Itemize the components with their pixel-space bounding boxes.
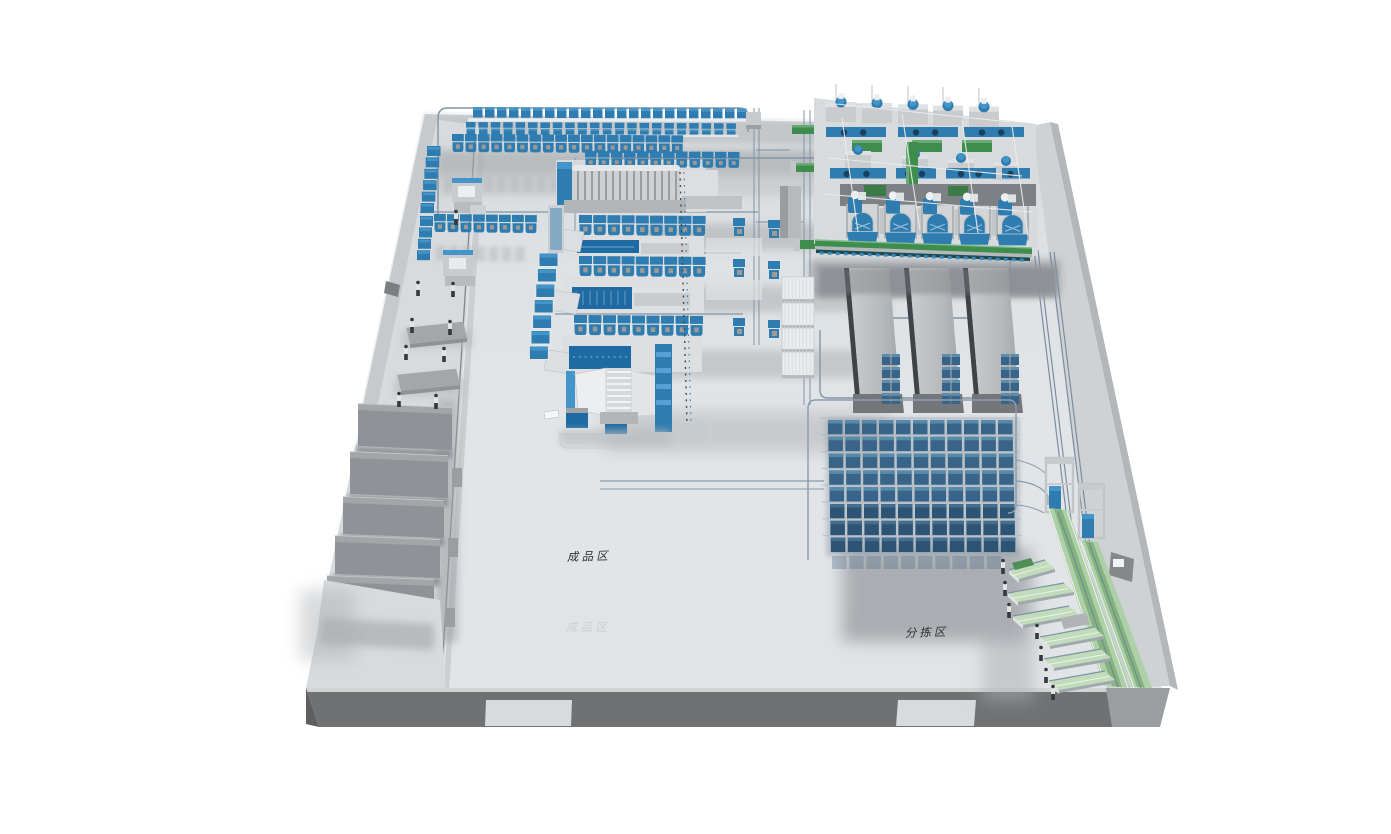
svg-text:分拣区: 分拣区 [905,625,949,640]
svg-text:成品区: 成品区 [567,549,612,564]
svg-text:成品区: 成品区 [566,621,610,634]
